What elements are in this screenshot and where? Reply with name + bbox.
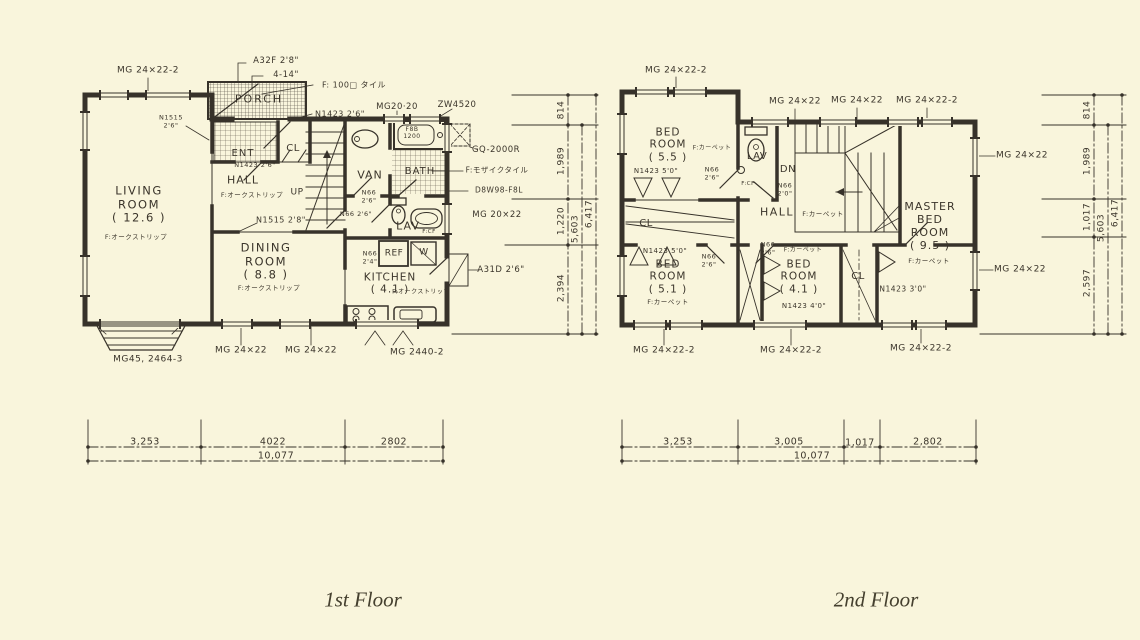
dim-2802-1f: 2802 <box>381 436 407 447</box>
blueprint-page: MG 24×22-2A32F 2'8"4-14"F: 100□ タイルPORCH… <box>0 0 1140 640</box>
dim-5603-2f: 5,603 <box>1097 214 1108 242</box>
mg-2440-2: MG 2440-2 <box>390 348 444 359</box>
n1423-3-0: N1423 3'0" <box>879 286 926 295</box>
dim-4022-1f: 4022 <box>260 436 286 447</box>
ref: REF <box>385 249 404 260</box>
mg45-2464-3: MG45, 2464-3 <box>113 355 183 366</box>
n66-2-6-51: N66 2'6" <box>701 253 716 268</box>
f-oak-living: F:オークストリップ <box>105 234 167 242</box>
bed-room-5-5: BED ROOM ( 5.5 ) <box>649 126 688 163</box>
f-oak-kitchen: F:オークストリップ <box>392 288 450 295</box>
f-oak-dining: F:オークストリップ <box>238 285 300 293</box>
mg-20x22: MG 20×22 <box>472 210 521 220</box>
n1423-4-0: N1423 4'0" <box>782 302 826 310</box>
up: UP <box>290 188 303 199</box>
dim-2597-2f: 2,597 <box>1083 269 1094 297</box>
n1423-2-6-porch: N1423 2'6" <box>315 109 365 118</box>
mg-24x22-right-2: MG 24×22 <box>994 265 1046 276</box>
cl-right-2f: CL <box>851 271 865 283</box>
n66-2-0: N66 2'0" <box>777 182 792 197</box>
n1423-5-0-top: N1423 5'0" <box>634 167 678 175</box>
n66-2-6-41: N66 2'6" <box>760 241 775 256</box>
f-carpet-hall: F:カーペット <box>802 211 843 219</box>
f-oak-hall: F:オークストリップ <box>221 192 283 200</box>
dn: DN <box>780 164 796 176</box>
bath: BATH <box>405 166 436 178</box>
annotation-layer: MG 24×22-2A32F 2'8"4-14"F: 100□ タイルPORCH… <box>0 0 1140 640</box>
dim-814-2f: 814 <box>1083 101 1094 120</box>
hall-1f: HALL <box>227 175 259 188</box>
mg-24x22-2-topleft-1f: MG 24×22-2 <box>117 66 179 77</box>
dim-3005-2f: 3,005 <box>774 436 804 447</box>
f-mosaic-tile: F:モザイクタイル <box>466 167 529 176</box>
cl-left-2f: CL <box>639 218 653 230</box>
n66-2-6-van: N66 2'6" <box>361 189 376 204</box>
f-carpet-5-5: F:カーペット <box>693 144 732 151</box>
dim-1017b-2f: 1,017 <box>845 437 875 448</box>
dim-5603-1f: 5,603 <box>571 215 582 243</box>
dim-1989-2f: 1,989 <box>1083 147 1094 175</box>
f-carpet-5-1: F:カーペット <box>647 299 688 307</box>
living-room: LIVING ROOM ( 12.6 ) <box>112 185 166 226</box>
van: VAN <box>357 170 383 183</box>
d8w98-f8l: D8W98-F8L <box>475 187 523 196</box>
n66-2-6-lav2: N66 2'6" <box>704 166 719 181</box>
mg-24x22-2-bot-1: MG 24×22-2 <box>633 346 695 357</box>
f-cf-lav-1f: F:CF <box>422 229 436 235</box>
mg-24x22-2-bot-2: MG 24×22-2 <box>760 346 822 357</box>
dim-4-14: 4-14" <box>273 70 299 80</box>
dim-6417-1f: 6,417 <box>585 200 596 228</box>
hall-2f: HALL <box>760 207 794 220</box>
dining-room: DINING ROOM ( 8.8 ) <box>241 242 292 283</box>
gq-2000r: GQ-2000R <box>472 145 520 155</box>
dim-6417-2f: 6,417 <box>1111 199 1122 227</box>
n1515-2-6: N1515 2'6" <box>159 114 183 129</box>
dim-3253-2f: 3,253 <box>663 436 693 447</box>
f-carpet-41: F:カーペット <box>784 246 823 253</box>
mg-20-20: MG20·20 <box>376 102 418 112</box>
mg-24x22-bottom-2: MG 24×22 <box>285 346 337 357</box>
ent: ENT <box>232 148 255 160</box>
n1515-2-8: N1515 2'8" <box>256 215 306 224</box>
f8b-1200: F8B 1200 <box>403 126 420 140</box>
dim-3253-1f: 3,253 <box>130 436 160 447</box>
a31d-2-6: A31D 2'6" <box>477 265 524 275</box>
n1423-2-6-hall: N1423 2'6" <box>234 162 276 170</box>
porch: PORCH <box>235 94 283 107</box>
dim-10077-2f: 10,077 <box>794 450 830 461</box>
f-cf-lav-2f: F:CF <box>741 181 755 187</box>
dim-2802-2f: 2,802 <box>913 436 943 447</box>
zw4520: ZW4520 <box>438 100 477 110</box>
master-bed-room: MASTER BED ROOM ( 9.5 ) <box>904 201 955 253</box>
bed-room-5-1: BED ROOM ( 5.1 ) <box>649 258 688 295</box>
lav-2f: LAV <box>747 151 767 163</box>
f-100-tile: F: 100□ タイル <box>322 80 386 89</box>
caption-2nd-floor: 2nd Floor <box>834 588 919 613</box>
dim-10077-1f: 10,077 <box>258 450 294 461</box>
w-appliance: W <box>419 248 428 259</box>
mg-24x22-bottom-1: MG 24×22 <box>215 346 267 357</box>
n1423-5-0-mid: N1423 5'0" <box>643 247 687 255</box>
lav-1f: LAV <box>396 221 420 234</box>
mg-24x22-top-1: MG 24×22 <box>769 97 821 108</box>
bed-room-4-1: BED ROOM ( 4.1 ) <box>780 258 819 295</box>
f-carpet-master: F:カーペット <box>908 258 949 266</box>
mg-24x22-2-bot-3: MG 24×22-2 <box>890 344 952 355</box>
mg-24x22-2-topleft-2f: MG 24×22-2 <box>645 66 707 77</box>
dim-1220-1f: 1,220 <box>557 207 568 235</box>
dim-1989-1f: 1,989 <box>557 147 568 175</box>
mg-24x22-top-2: MG 24×22 <box>831 96 883 107</box>
cl-1f: CL <box>286 143 300 155</box>
a32f-2-8: A32F 2'8" <box>253 56 299 66</box>
n66-2-4: N66 2'4" <box>362 250 377 265</box>
dim-814-1f: 814 <box>557 101 568 120</box>
n66-2-6-lav: N66 2'6" <box>340 211 372 219</box>
mg-24x22-right-1: MG 24×22 <box>996 151 1048 162</box>
dim-1017-2f: 1,017 <box>1083 203 1094 231</box>
dim-2394-1f: 2,394 <box>557 274 568 302</box>
mg-24x22-2-top-3: MG 24×22-2 <box>896 96 958 107</box>
caption-1st-floor: 1st Floor <box>324 588 402 613</box>
